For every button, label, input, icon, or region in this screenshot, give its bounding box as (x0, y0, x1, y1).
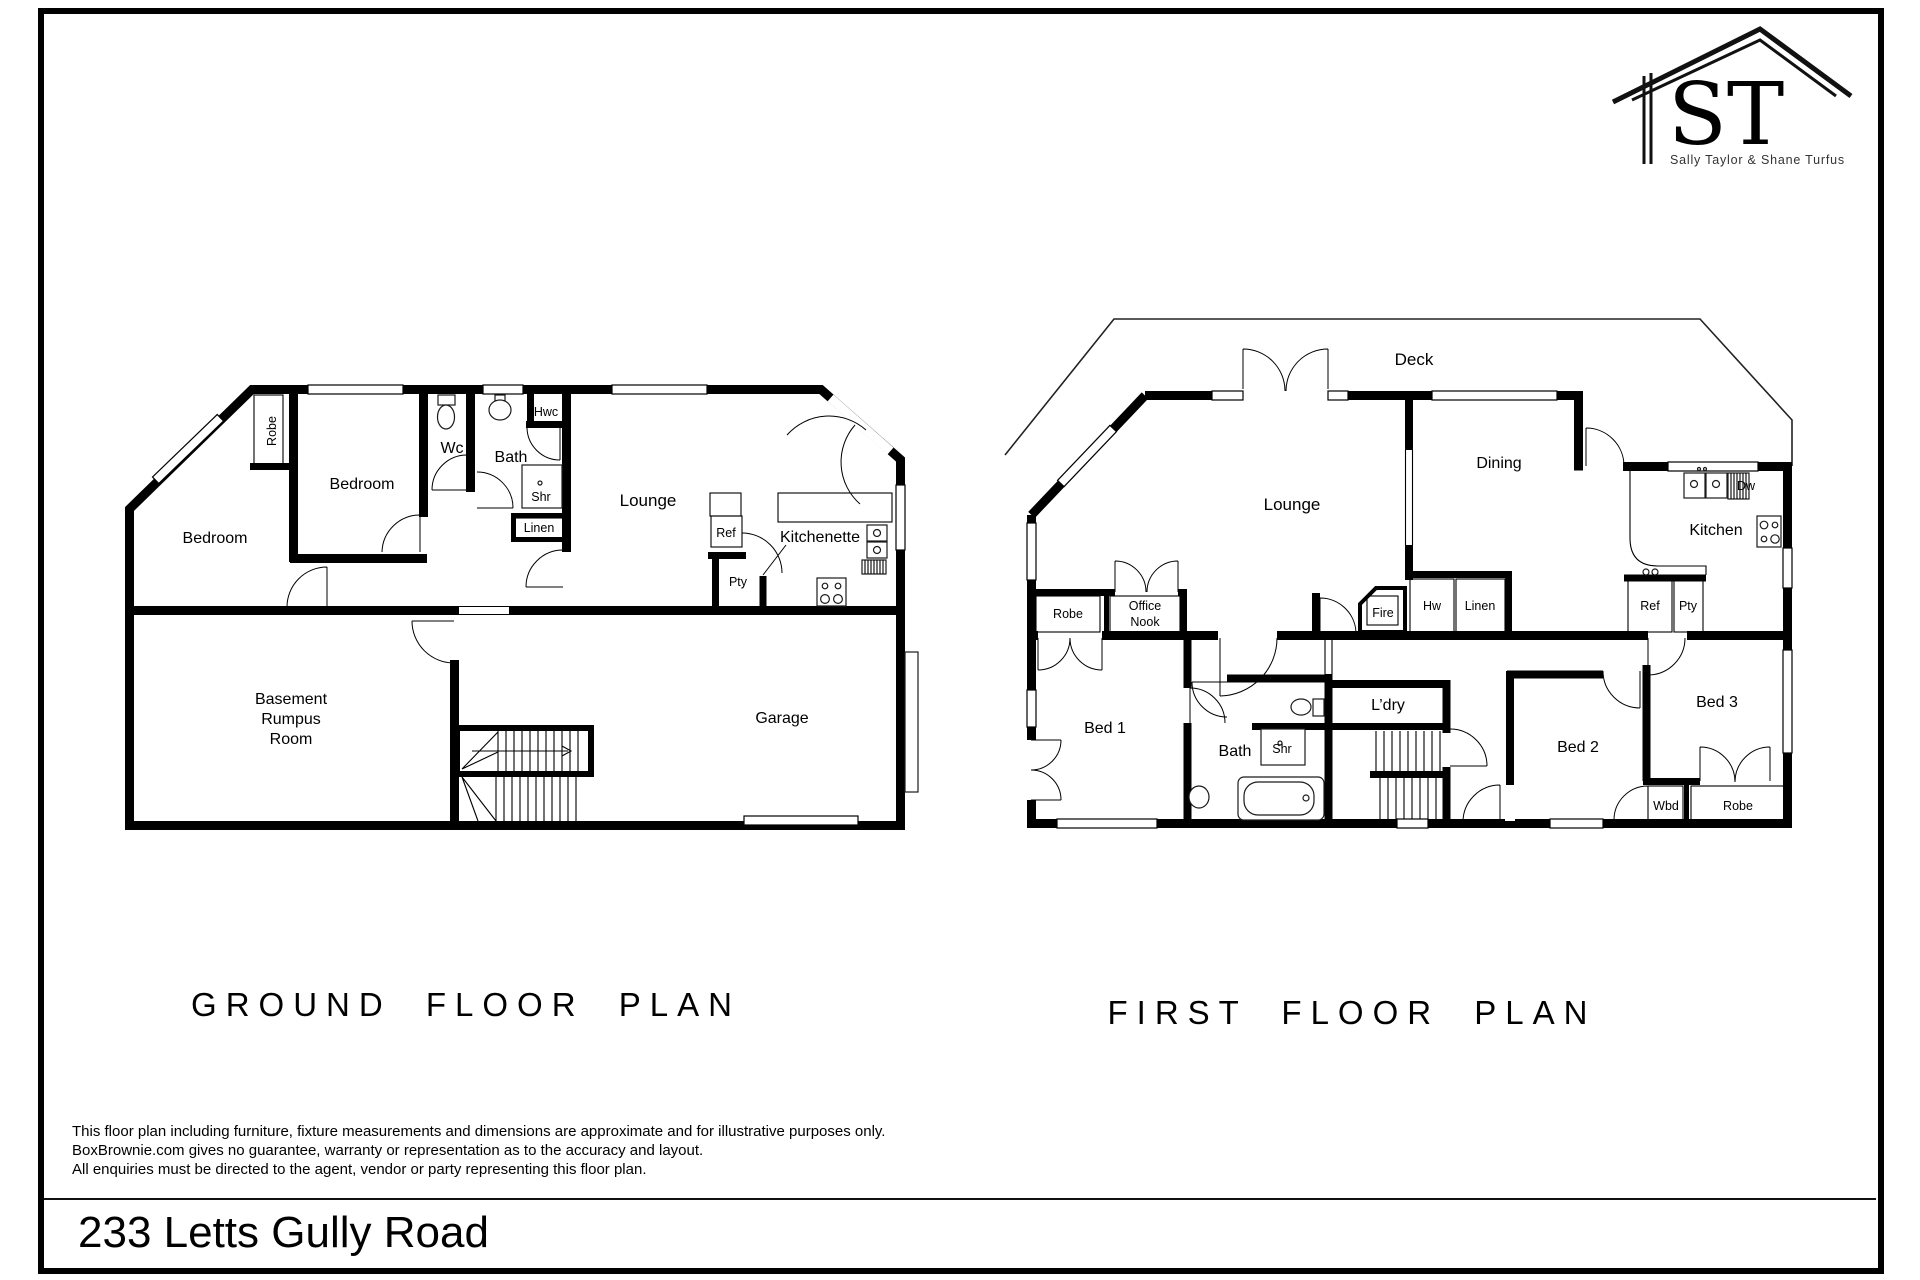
ground-floor-title: GROUND FLOOR PLAN (60, 986, 872, 1024)
room-label-dining: Dining (1476, 455, 1521, 472)
floor-plan-page: ST Sally Taylor & Shane Turfus (0, 0, 1920, 1280)
room-label-garage: Garage (755, 710, 808, 727)
room-label-bath: Bath (495, 449, 528, 466)
room-label-bed1: Bed 1 (1084, 720, 1126, 737)
room-label-linen: Linen (524, 521, 555, 535)
stove-icon (817, 578, 846, 606)
property-address: 233 Letts Gully Road (78, 1208, 489, 1258)
kitchen-sink-icon (1684, 468, 1727, 499)
dishwasher-icon (862, 560, 886, 574)
ground-floor-plan: Bedroom Bedroom Robe Wc Bath Hwc Shr Lin… (110, 375, 940, 845)
room-label-deck: Deck (1395, 350, 1434, 369)
room-label-hwc: Hwc (534, 405, 558, 419)
room-label-shr: Shr (531, 490, 550, 504)
room-label-bedroom-left: Bedroom (183, 530, 248, 547)
room-label-lounge: Lounge (1264, 495, 1321, 514)
disclaimer-line-1: This floor plan including furniture, fix… (72, 1122, 885, 1141)
room-label-office-2: Nook (1130, 615, 1160, 629)
room-label-robe2: Robe (1723, 799, 1753, 813)
room-label-lounge: Lounge (620, 491, 677, 510)
first-floor-plan: Deck Lounge Dining Kitchen Dw Robe Offic… (980, 250, 1870, 860)
room-label-robe: Robe (1053, 607, 1083, 621)
first-floor-title: FIRST FLOOR PLAN (952, 994, 1752, 1032)
disclaimer-line-2: BoxBrownie.com gives no guarantee, warra… (72, 1141, 885, 1160)
footer-divider (44, 1198, 1876, 1200)
stove-icon (1757, 516, 1781, 547)
room-label-ref: Ref (1640, 599, 1660, 613)
room-label-bedroom-upper: Bedroom (330, 476, 395, 493)
room-label-basement-1: Basement (255, 691, 328, 708)
room-label-kitchenette: Kitchenette (780, 529, 860, 546)
room-label-bed3: Bed 3 (1696, 694, 1738, 711)
logo-initials: ST (1668, 65, 1784, 165)
room-label-dw: Dw (1737, 479, 1756, 493)
room-label-linen: Linen (1465, 599, 1496, 613)
room-label-fire: Fire (1372, 606, 1394, 620)
room-label-kitchen: Kitchen (1689, 522, 1742, 539)
toilet-icon (1291, 699, 1324, 716)
room-label-ref: Ref (716, 526, 736, 540)
room-label-wbd: Wbd (1653, 799, 1679, 813)
room-label-bed2: Bed 2 (1557, 739, 1599, 756)
garage-door (905, 652, 918, 792)
laundry-tub-icon (1643, 569, 1658, 575)
room-label-basement-3: Room (270, 731, 313, 748)
room-label-shr: Shr (1272, 742, 1291, 756)
room-label-pty: Pty (1679, 599, 1698, 613)
disclaimer: This floor plan including furniture, fix… (72, 1122, 885, 1179)
room-label-office-1: Office (1129, 599, 1161, 613)
room-label-wc: Wc (440, 440, 463, 457)
toilet-icon (438, 395, 456, 429)
room-label-hw: Hw (1423, 599, 1442, 613)
disclaimer-line-3: All enquiries must be directed to the ag… (72, 1160, 885, 1179)
basin-icon (1189, 786, 1209, 808)
logo-subtitle: Sally Taylor & Shane Turfus (1670, 153, 1845, 167)
kitchen-sink-icon (867, 525, 887, 558)
agency-logo: ST Sally Taylor & Shane Turfus (1608, 16, 1878, 176)
room-label-ldry: L’dry (1371, 697, 1405, 714)
room-label-robe: Robe (265, 416, 279, 446)
bathtub-icon (1238, 777, 1324, 820)
room-label-pty: Pty (729, 575, 748, 589)
room-label-bath: Bath (1219, 743, 1252, 760)
room-label-basement-2: Rumpus (261, 711, 321, 728)
